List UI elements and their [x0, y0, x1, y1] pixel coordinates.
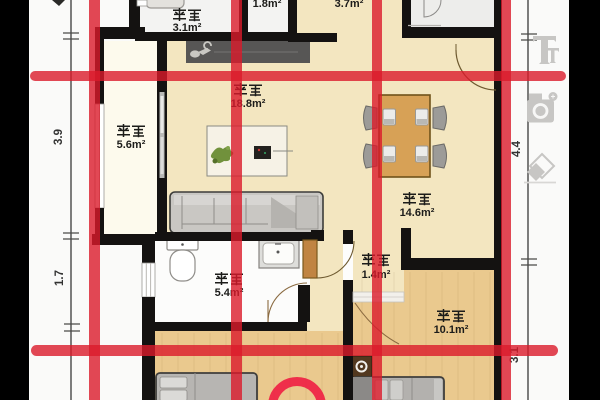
svg-text:1.8m²: 1.8m² [253, 0, 282, 10]
svg-text:1.7: 1.7 [54, 270, 66, 286]
svg-text:14.6m²: 14.6m² [400, 207, 435, 219]
svg-text:3.1m²: 3.1m² [173, 22, 202, 34]
svg-text:3.9: 3.9 [53, 129, 65, 145]
svg-text:3.7m²: 3.7m² [335, 0, 364, 10]
svg-text:5.6m²: 5.6m² [117, 139, 146, 151]
svg-text:4.4: 4.4 [511, 140, 523, 157]
svg-text:10.1m²: 10.1m² [434, 324, 469, 336]
